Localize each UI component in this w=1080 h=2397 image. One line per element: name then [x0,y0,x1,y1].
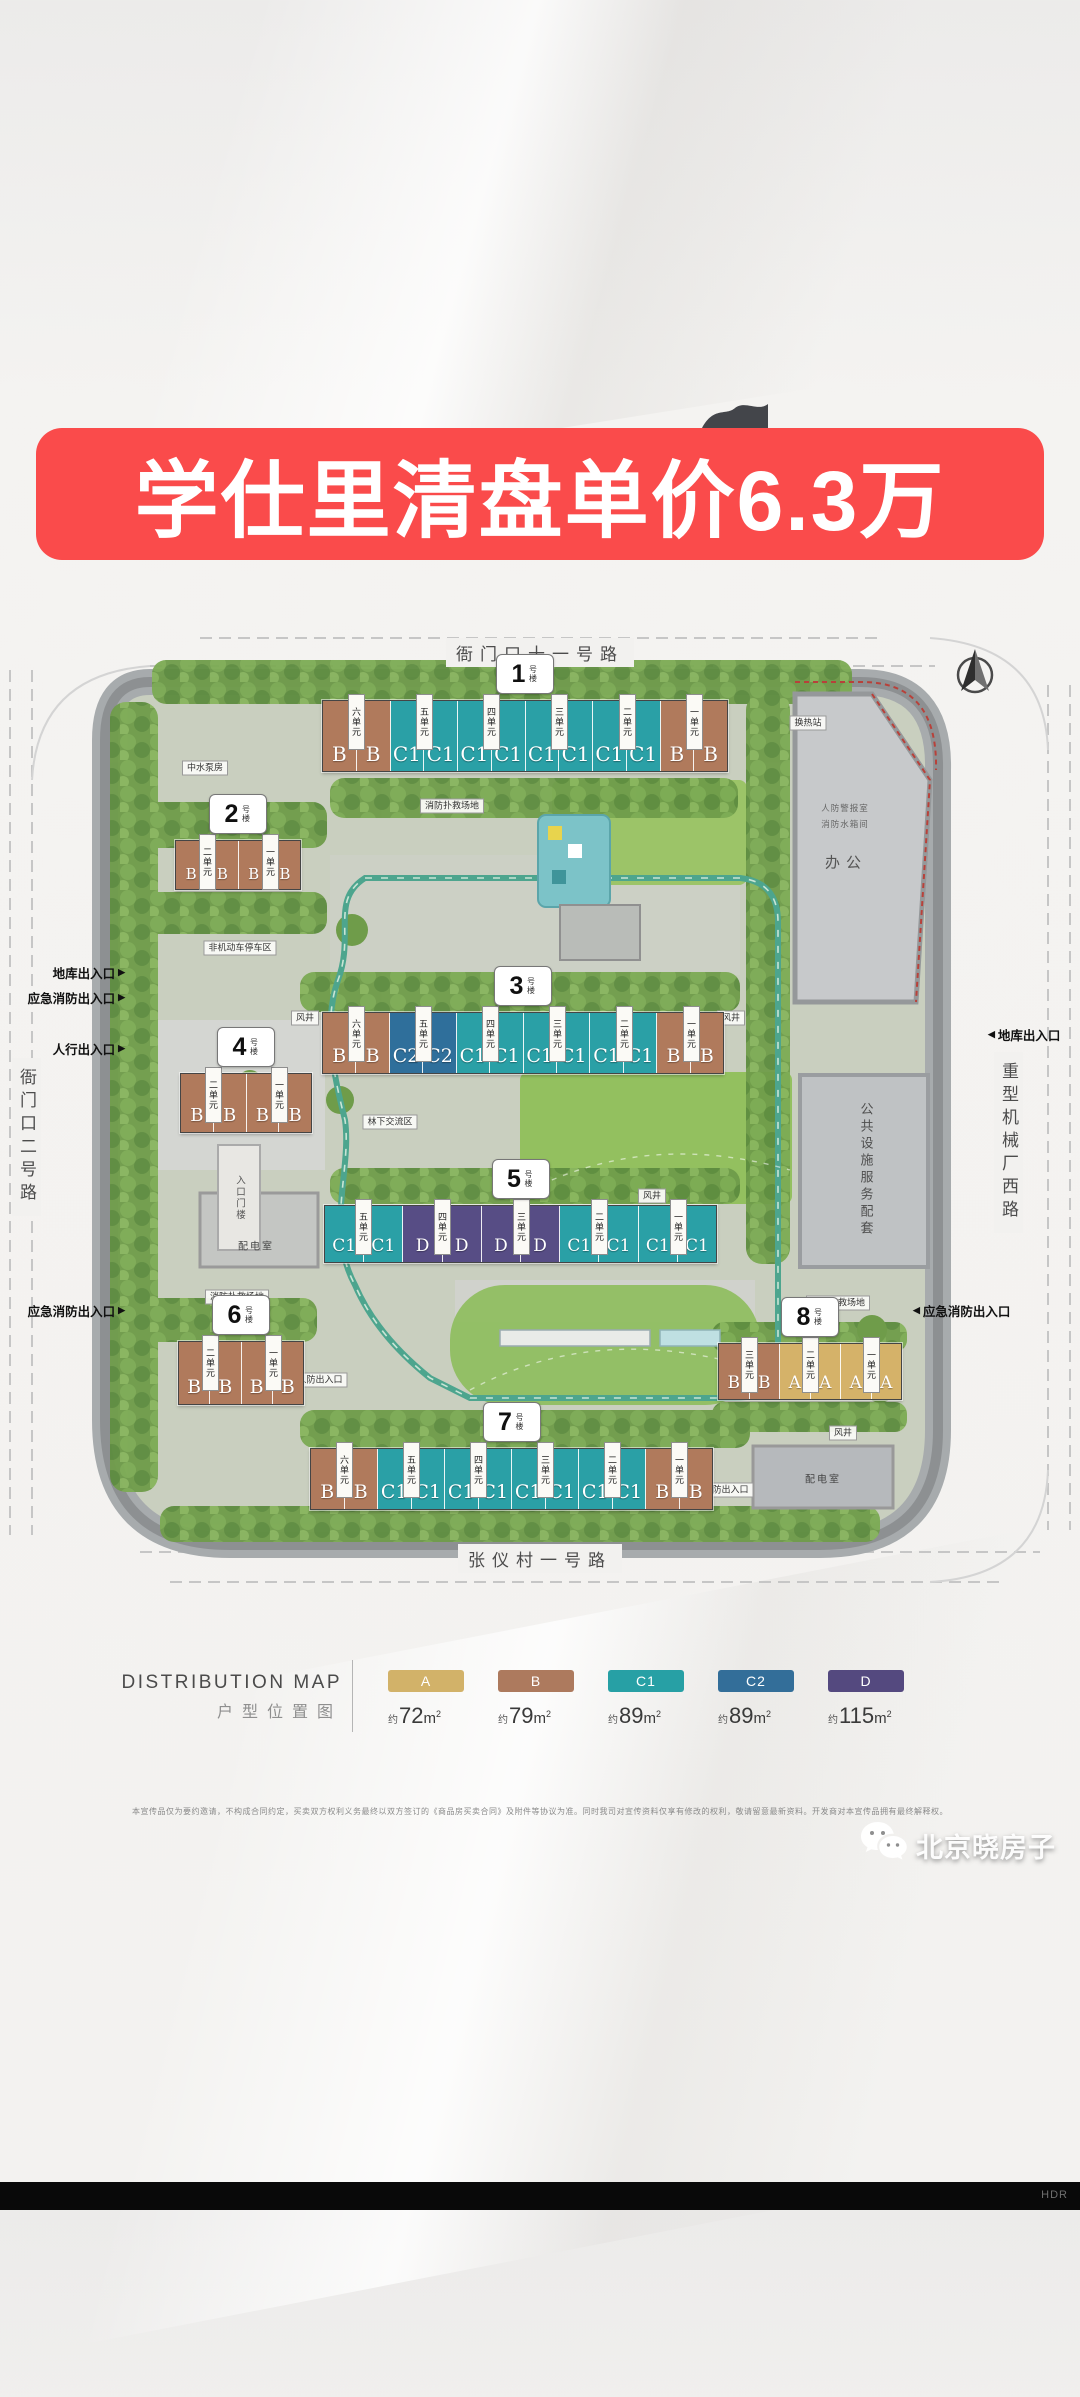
entrance-garage-right: ◀地库出入口 [988,1025,1060,1044]
unit-tab: 六单元 [348,1006,365,1062]
entrance-pedestrian-left: 人行出入口▶ [53,1039,125,1058]
legend-subtitle: 户型位置图 [110,1698,342,1722]
building-badge-8: 8号楼 [781,1297,839,1337]
road-label-left: 衙门口二号路 [12,1058,41,1216]
promo-banner-title: 学仕里清盘单价6.3万 [135,434,946,555]
building-row-5: 5号楼C1C1DDDDC1C1C1C1五单元四单元三单元二单元一单元 [324,1205,717,1263]
unit-tab: 六单元 [336,1442,353,1498]
north-arrow-icon [948,645,1002,706]
office-parcel-label: 办公 [825,852,867,873]
unit-tab: 五单元 [416,694,433,750]
building-badge-6: 6号楼 [212,1295,270,1335]
unit-tab: 二单元 [604,1442,621,1498]
legend-divider [352,1660,353,1732]
unit-blocks: BBBB [180,1073,312,1133]
arrow-right-icon: ▶ [118,1306,125,1315]
unit-tab: 二单元 [619,694,636,750]
legend-swatch-C2: C2 [718,1670,794,1692]
unit-tab: 四单元 [470,1442,487,1498]
promo-banner: 学仕里清盘单价6.3万 [36,428,1044,560]
community-strip [500,1330,650,1346]
unit-tab: 三单元 [741,1337,758,1393]
unit-tab: 五单元 [403,1442,420,1498]
unit-tab: 一单元 [686,694,703,750]
unit-blocks: BBBB [175,840,301,890]
unit-tab: 二单元 [616,1006,633,1062]
unit-tab: 一单元 [863,1337,880,1393]
building-row-6: 6号楼BBBB二单元一单元 [178,1341,304,1405]
legend-area-A: 约72m2 [388,1703,464,1729]
watermark-name: 北京晓房子 [916,1826,1056,1865]
legend-item-C2: C2约89m2 [718,1670,794,1729]
legend-item-A: A约72m2 [388,1670,464,1729]
legend-swatch-C1: C1 [608,1670,684,1692]
building-badge-3: 3号楼 [494,966,552,1006]
building-badge-1: 1号楼 [496,654,554,694]
legend-item-B: B约79m2 [498,1670,574,1729]
unit-tab: 一单元 [683,1006,700,1062]
gatehouse-label: 入口门楼 [232,1175,246,1221]
unit-tab: 六单元 [348,694,365,750]
legend-area-D: 约115m2 [828,1703,904,1729]
unit-tab: 二单元 [205,1067,222,1123]
forest-lounge-chip: 林下交流区 [362,1115,417,1130]
legend-item-D: D约115m2 [828,1670,904,1729]
building-row-2: 2号楼BBBB二单元一单元 [175,840,301,890]
building-row-7: 7号楼BBC1C1C1C1C1C1C1C1BB六单元五单元四单元三单元二单元一单… [310,1448,713,1510]
unit-tab: 三单元 [537,1442,554,1498]
legend-area-B: 约79m2 [498,1703,574,1729]
site-plan-map: 衙门口十一号路 衙门口二号路 重型机械厂西路 张仪村一号路 人防警报室 消防水箱… [0,630,1080,1630]
legend: DISTRIBUTION MAP 户型位置图 A约72m2B约79m2C1约89… [0,1650,1080,1760]
building-row-8: 8号楼BBAAAA三单元二单元一单元 [718,1343,902,1400]
unit-tab: 二单元 [199,834,216,890]
legend-area-C2: 约89m2 [718,1703,794,1729]
building-row-3: 3号楼BBC2C2C1C1C1C1C1C1BB六单元五单元四单元三单元二单元一单… [322,1012,724,1074]
unit-tab: 一单元 [262,834,279,890]
vent-shaft-chip: 风井 [291,1011,319,1026]
amenity-building [560,905,640,960]
unit-blocks: BBBB [178,1341,304,1405]
unit-tab: 四单元 [434,1199,451,1255]
unit-tab: 三单元 [513,1199,530,1255]
legend-title: DISTRIBUTION MAP [110,1672,342,1694]
power-room-right-label: 配电室 [805,1471,841,1486]
watermark: 北京晓房子 [860,1820,1056,1871]
office-parcel-sub2: 消防水箱间 [821,818,869,830]
legend-swatch-D: D [828,1670,904,1692]
building-badge-4: 4号楼 [217,1027,275,1067]
entrance-emergency-right: ◀应急消防出入口 [913,1301,1010,1320]
office-parcel-sub1: 人防警报室 [821,802,869,814]
arrow-right-icon: ▶ [118,1044,125,1053]
unit-tab: 二单元 [202,1335,219,1391]
vent-shaft-chip: 风井 [638,1189,666,1204]
hdr-badge: HDR [1041,2189,1068,2201]
arrow-right-icon: ▶ [118,968,125,977]
entrance-emergency-left-1: 应急消防出入口▶ [28,988,125,1007]
unit-blocks: BBC2C2C1C1C1C1C1C1BB [322,1012,724,1074]
vent-shaft-chip: 风井 [829,1426,857,1441]
legend-item-C1: C1约89m2 [608,1670,684,1729]
unit-tab: 二单元 [591,1199,608,1255]
building-badge-7: 7号楼 [483,1402,541,1442]
unit-tab: 四单元 [482,1006,499,1062]
water-pump-room-chip: 中水泵房 [182,761,228,776]
bottom-letterbox-bar: HDR [0,2182,1080,2210]
unit-tab: 一单元 [670,1199,687,1255]
unit-tab: 一单元 [671,1442,688,1498]
legend-swatch-A: A [388,1670,464,1692]
building-badge-2: 2号楼 [209,794,267,834]
bicycle-parking-chip: 非机动车停车区 [203,941,276,956]
entrance-emergency-left-2: 应急消防出入口▶ [28,1301,125,1320]
heat-exchange-station-chip: 换热站 [789,716,826,731]
legend-area-C1: 约89m2 [608,1703,684,1729]
arrow-right-icon: ▶ [118,993,125,1002]
arrow-left-icon: ◀ [988,1030,995,1039]
unit-tab: 三单元 [549,1006,566,1062]
arrow-left-icon: ◀ [913,1306,920,1315]
building-row-4: 4号楼BBBB二单元一单元 [180,1073,312,1133]
road-label-bottom: 张仪村一号路 [458,1544,622,1573]
unit-tab: 五单元 [415,1006,432,1062]
unit-tab: 五单元 [355,1199,372,1255]
disclaimer-text: 本宣传品仅为要约邀请，不构成合同约定，买卖双方权利义务最终以双方签订的《商品房买… [0,1806,1080,1817]
power-room-left-label: 配电室 [238,1238,274,1253]
unit-blocks: BBC1C1C1C1C1C1C1C1BB [322,700,728,772]
unit-tab: 四单元 [483,694,500,750]
entrance-garage-left: 地库出入口▶ [53,963,125,982]
unit-tab: 一单元 [271,1067,288,1123]
legend-items: A约72m2B约79m2C1约89m2C2约89m2D约115m2 [388,1670,904,1729]
road-label-right: 重型机械厂西路 [994,1052,1023,1233]
wechat-logo-icon [860,1820,910,1871]
building-badge-5: 5号楼 [492,1159,550,1199]
fire-rescue-area-chip: 消防扑救场地 [420,799,484,814]
legend-swatch-B: B [498,1670,574,1692]
building-row-1: 1号楼BBC1C1C1C1C1C1C1C1BB六单元五单元四单元三单元二单元一单… [322,700,728,772]
public-service-label: 公共设施服务配套 [857,1102,876,1238]
unit-tab: 三单元 [551,694,568,750]
unit-blocks: BBC1C1C1C1C1C1C1C1BB [310,1448,713,1510]
unit-tab: 一单元 [265,1335,282,1391]
unit-tab: 二单元 [802,1337,819,1393]
